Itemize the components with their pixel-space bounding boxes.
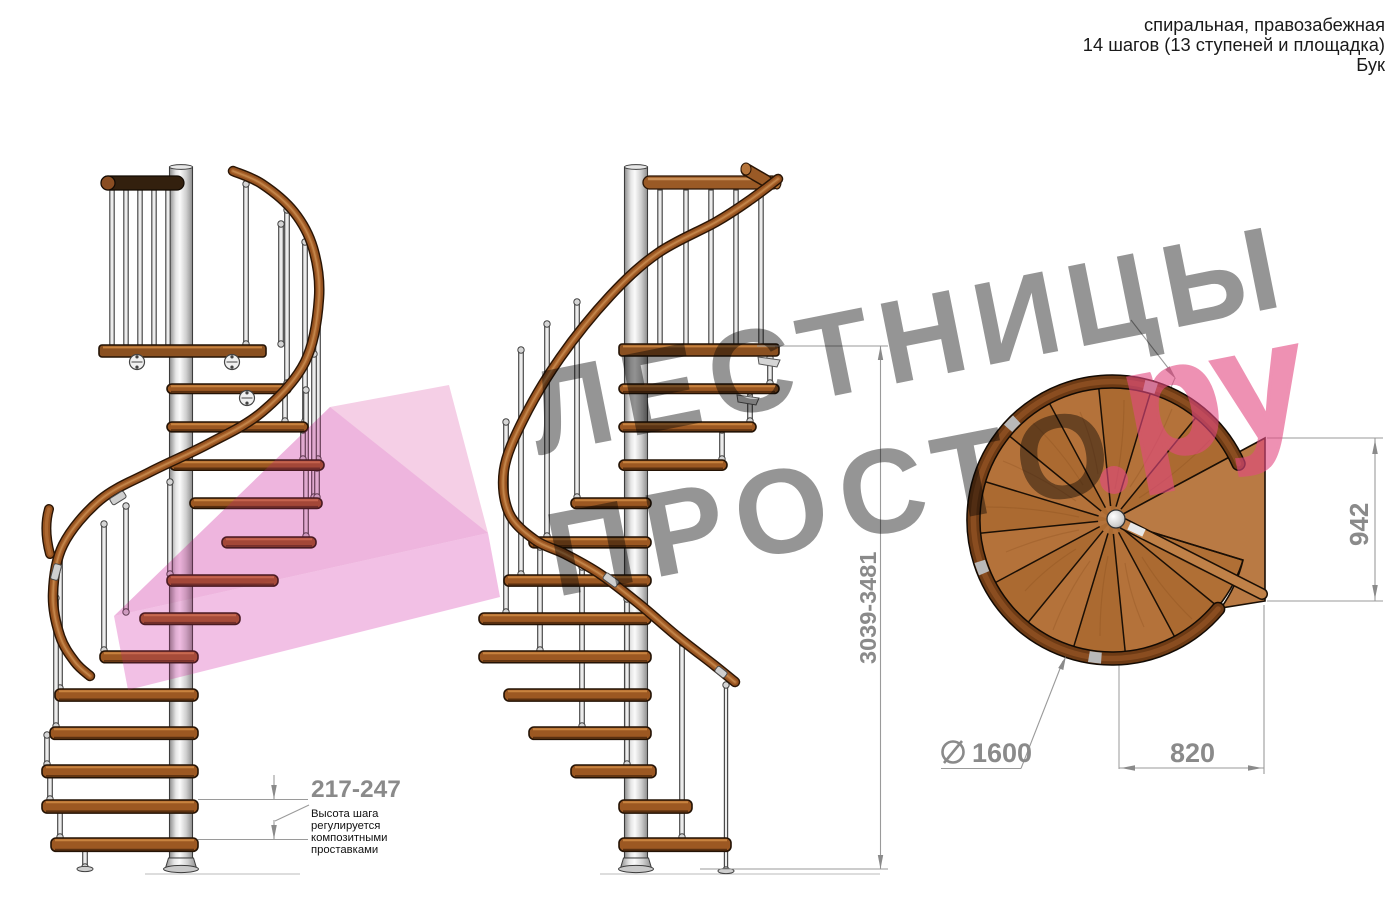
svg-text:ру: ру	[1106, 286, 1319, 497]
